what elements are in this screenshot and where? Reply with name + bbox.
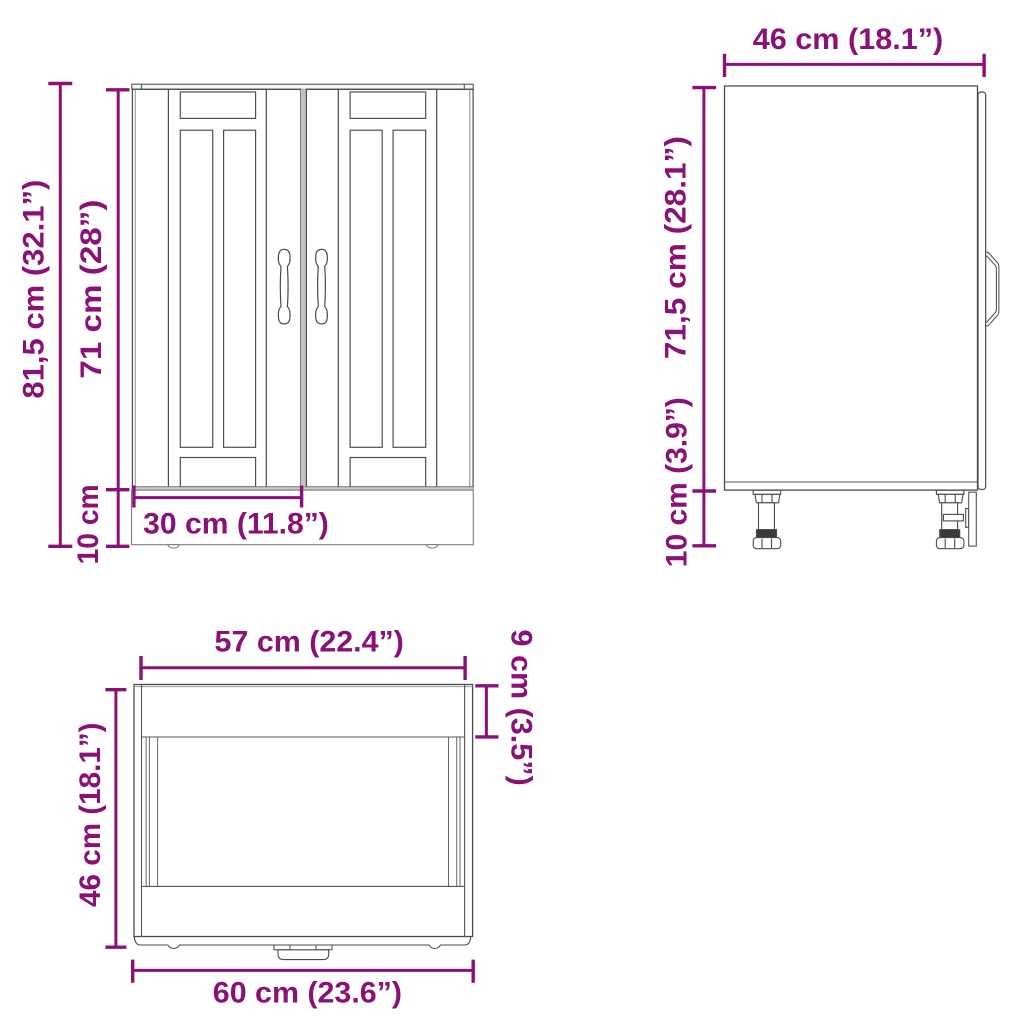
svg-text:71,5 cm (28.1”): 71,5 cm (28.1”) xyxy=(660,136,693,359)
svg-text:9 cm (3.5”): 9 cm (3.5”) xyxy=(504,629,537,785)
svg-text:46 cm (18.1”): 46 cm (18.1”) xyxy=(753,23,944,56)
svg-text:30 cm (11.8”): 30 cm (11.8”) xyxy=(143,507,329,540)
svg-text:10 cm: 10 cm xyxy=(72,484,105,564)
svg-text:71 cm (28”): 71 cm (28”) xyxy=(75,200,108,379)
svg-text:10 cm (3.9”): 10 cm (3.9”) xyxy=(661,397,694,567)
svg-text:46 cm (18.1”): 46 cm (18.1”) xyxy=(74,722,107,907)
svg-text:60 cm (23.6”): 60 cm (23.6”) xyxy=(213,976,402,1009)
svg-text:57 cm (22.4”): 57 cm (22.4”) xyxy=(215,626,404,659)
svg-text:81,5 cm (32.1”): 81,5 cm (32.1”) xyxy=(18,180,51,399)
